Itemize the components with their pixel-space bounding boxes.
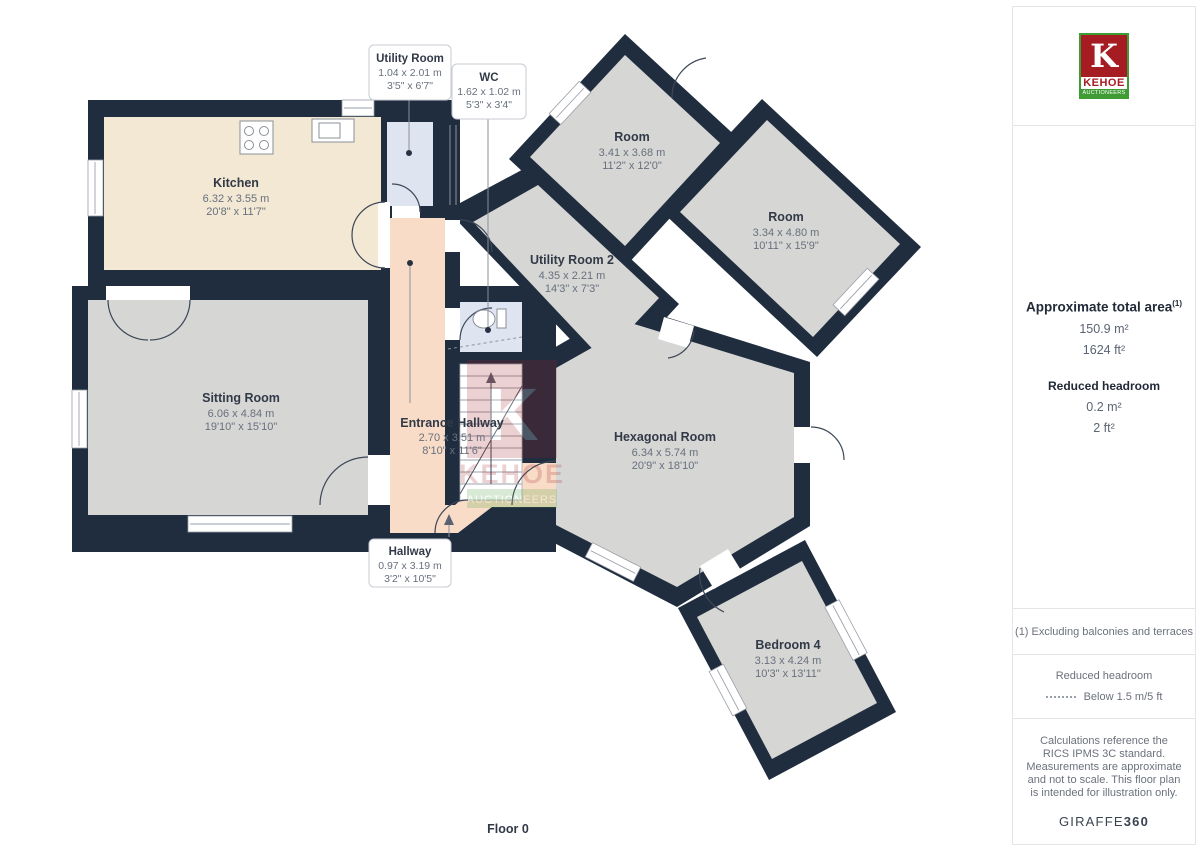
svg-text:3.41 x 3.68 m: 3.41 x 3.68 m — [599, 147, 666, 159]
svg-text:5'3" x 3'4": 5'3" x 3'4" — [466, 99, 512, 111]
svg-text:0.97 x 3.19 m: 0.97 x 3.19 m — [378, 560, 442, 572]
wc-callout: WC 1.62 x 1.02 m 5'3" x 3'4" — [452, 64, 526, 119]
svg-text:11'2" x 12'0": 11'2" x 12'0" — [602, 160, 662, 172]
total-area-title: Approximate total area(1) — [1026, 299, 1182, 315]
svg-text:20'9" x 18'10": 20'9" x 18'10" — [632, 460, 699, 472]
svg-text:3'5" x 6'7": 3'5" x 6'7" — [387, 80, 433, 92]
total-area-imperial: 1624 ft² — [1083, 343, 1125, 357]
room-a-label: Room — [614, 130, 649, 144]
footnote-text: (1) Excluding balconies and terraces — [1015, 626, 1193, 638]
info-sidebar: K KEHOE AUCTIONEERS Approximate total ar… — [1012, 6, 1196, 845]
area-summary-section: Approximate total area(1) 150.9 m² 1624 … — [1013, 125, 1195, 608]
watermark-k: K — [485, 373, 538, 456]
footnote-ref: (1) — [1172, 299, 1182, 308]
kitchen-label: Kitchen — [213, 176, 259, 190]
floorplan-page: K KEHOE AUCTIONEERS Kitchen 6.32 x 3.55 … — [0, 0, 1200, 849]
watermark-name: KEHOE — [459, 459, 565, 489]
svg-text:10'3" x 13'11": 10'3" x 13'11" — [755, 668, 821, 680]
toilet-icon — [473, 310, 495, 328]
room-b-label: Room — [768, 210, 803, 224]
svg-text:19'10" x 15'10": 19'10" x 15'10" — [205, 421, 278, 433]
legend-section: Reduced headroom Below 1.5 m/5 ft — [1013, 654, 1195, 718]
svg-text:Utility Room: Utility Room — [376, 53, 444, 65]
bedroom-4-label: Bedroom 4 — [755, 638, 820, 652]
utility-room-2-label: Utility Room 2 — [530, 253, 614, 267]
logo-name: KEHOE — [1081, 77, 1127, 89]
disclaimer-text: Calculations reference the RICS IPMS 3C … — [1026, 735, 1182, 800]
svg-text:2.70 x 3.51 m: 2.70 x 3.51 m — [419, 432, 486, 444]
dashed-line-icon — [1046, 696, 1076, 698]
svg-text:20'8" x 11'7": 20'8" x 11'7" — [206, 206, 266, 218]
svg-text:1.04 x 2.01 m: 1.04 x 2.01 m — [378, 67, 442, 79]
logo-k-icon: K — [1081, 35, 1127, 77]
kehoe-logo: K KEHOE AUCTIONEERS — [1079, 33, 1129, 99]
svg-text:1.62 x 1.02 m: 1.62 x 1.02 m — [457, 86, 521, 98]
legend-item: Below 1.5 m/5 ft — [1084, 691, 1163, 703]
svg-text:6.34 x 5.74 m: 6.34 x 5.74 m — [632, 447, 699, 459]
floorplan-canvas: K KEHOE AUCTIONEERS Kitchen 6.32 x 3.55 … — [0, 0, 1014, 849]
logo-subtitle: AUCTIONEERS — [1081, 89, 1127, 97]
svg-text:WC: WC — [479, 72, 498, 84]
utility-room-callout: Utility Room 1.04 x 2.01 m 3'5" x 6'7" — [369, 45, 451, 100]
svg-text:8'10" x 11'6": 8'10" x 11'6" — [422, 445, 482, 457]
reduced-headroom-metric: 0.2 m² — [1086, 400, 1121, 414]
giraffe360-brand: GIRAFFE360 — [1059, 814, 1149, 829]
svg-text:4.35 x 2.21 m: 4.35 x 2.21 m — [539, 270, 606, 282]
reduced-headroom-title: Reduced headroom — [1048, 379, 1160, 393]
svg-text:3.34 x 4.80 m: 3.34 x 4.80 m — [753, 227, 820, 239]
entrance-hallway-label: Entrance Hallway — [400, 416, 504, 430]
sitting-room-label: Sitting Room — [202, 391, 280, 405]
hallway-callout: Hallway 0.97 x 3.19 m 3'2" x 10'5" — [369, 539, 451, 587]
legend-title: Reduced headroom — [1056, 670, 1153, 682]
svg-text:Hallway: Hallway — [389, 546, 432, 558]
svg-text:3'2" x 10'5": 3'2" x 10'5" — [384, 573, 436, 585]
svg-text:14'3" x 7'3": 14'3" x 7'3" — [545, 283, 599, 295]
watermark-subtitle: AUCTIONEERS — [467, 494, 557, 506]
utility-room-floor — [387, 122, 433, 206]
floor-label: Floor 0 — [487, 822, 529, 836]
svg-text:3.13 x 4.24 m: 3.13 x 4.24 m — [755, 655, 822, 667]
hexagonal-room-east-door — [811, 427, 844, 460]
hexagonal-room-label: Hexagonal Room — [614, 430, 716, 444]
svg-text:6.32 x 3.55 m: 6.32 x 3.55 m — [203, 193, 270, 205]
disclaimer-section: Calculations reference the RICS IPMS 3C … — [1013, 718, 1195, 844]
footnote-section: (1) Excluding balconies and terraces — [1013, 608, 1195, 654]
svg-text:6.06 x 4.84 m: 6.06 x 4.84 m — [208, 408, 275, 420]
wc-floor — [460, 302, 522, 352]
logo-section: K KEHOE AUCTIONEERS — [1013, 7, 1195, 125]
cooker-icon — [240, 121, 273, 154]
entrance-hallway-floor — [390, 218, 445, 505]
reduced-headroom-imperial: 2 ft² — [1093, 421, 1115, 435]
total-area-metric: 150.9 m² — [1079, 322, 1128, 336]
svg-text:10'11" x 15'9": 10'11" x 15'9" — [753, 240, 819, 252]
